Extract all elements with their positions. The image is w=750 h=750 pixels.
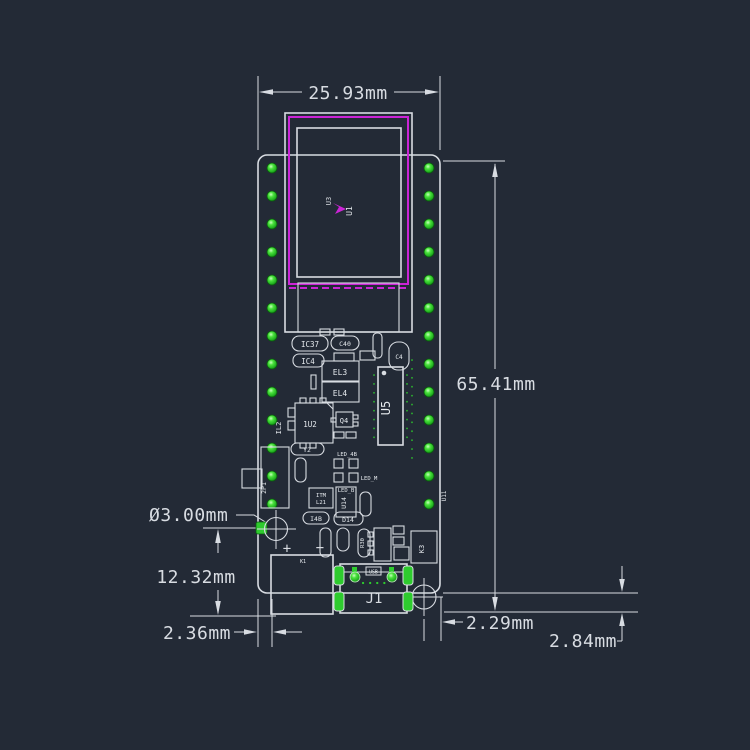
pin-pad [424,443,434,453]
el4-label: EL4 [333,389,348,398]
dim-left-gap-text: 2.36mm [163,623,231,644]
chip-u2-label: 1U2 [303,420,317,429]
crystal-c4-label: C4 [395,354,403,361]
pin-pad [267,359,277,369]
pin-pad [424,303,434,313]
chip-u5-pin1-dot [382,371,387,376]
diode-y2-label: Y2 [303,446,311,454]
pin-pad [267,247,277,257]
l21-label: L21 [316,500,326,506]
pin-pad [267,471,277,481]
pin-pad [267,331,277,341]
cad-drawing: 25.93mm 65.41mm Ø3.00mm 12.32mm 2.36mm [0,0,750,750]
transistor-q4-label: Q4 [340,417,348,425]
pin-pad [424,275,434,285]
pin-pad [424,387,434,397]
pin-pad [424,191,434,201]
dim-right-gap-text: 2.29mm [466,613,534,634]
cap-ic4-label: IC4 [301,357,315,366]
cap-i4b-label: I4B [310,515,322,523]
chip-u5-label: U5 [379,401,393,415]
diode-d14-label: D14 [342,516,354,524]
led-b-label: LED_B [338,488,355,494]
el3-label: EL3 [333,368,348,377]
connector-k3-label: K3 [418,545,426,553]
cap-ic37-label: IC37 [301,340,319,349]
pin-pad [424,331,434,341]
usb-label: USB [369,570,378,576]
cad-canvas: 25.93mm 65.41mm Ø3.00mm 12.32mm 2.36mm [0,0,750,750]
usb-mount-pad [387,572,397,582]
pin-pad [267,387,277,397]
battery-plus-mark: + [283,541,291,557]
pin-pad [267,303,277,313]
pin-pad [424,415,434,425]
usb-shield-pad [403,592,413,611]
usb-shield-pad [334,592,344,611]
usb-mount-pad [350,572,360,582]
pin-pad [424,163,434,173]
dim-usb-overhang-text: 2.84mm [549,631,617,652]
dim-width-text: 25.93mm [308,83,387,104]
pin-pad [267,219,277,229]
usb-shield-pad [403,566,413,585]
pin-pad [267,191,277,201]
cap-c40-label: C40 [339,340,351,348]
chip-u14-label: U14 [340,497,348,509]
display-ref-u3: U3 [325,197,333,205]
usb-shield-pad [334,566,344,585]
pin-pad [424,219,434,229]
led-4b-label: LED_4B [337,452,358,458]
battery-minus-mark: − [316,540,324,556]
pin-pad [424,247,434,257]
pin-pad [267,275,277,285]
usb-refdes-j1: J1 [366,591,383,607]
button-label: 2P1 [260,482,268,494]
pin-pad [424,471,434,481]
resistor-r30-label: R30 [360,538,366,548]
dim-hole-text: Ø3.00mm [149,505,228,526]
pin-pad [267,163,277,173]
itm-label: ITM [316,493,327,499]
pin-pad [424,359,434,369]
display-ref-u1: U1 [345,206,354,216]
pin-pad [267,443,277,453]
dim-hole-bottom-text: 12.32mm [156,567,235,588]
il2-label: IL2 [275,422,283,435]
led-m-label: LED_M [361,476,378,482]
pin-pad [424,499,434,509]
u11-label: U11 [441,490,448,501]
dim-height-text: 65.41mm [456,374,535,395]
battery-connector-label: K1 [300,559,306,565]
